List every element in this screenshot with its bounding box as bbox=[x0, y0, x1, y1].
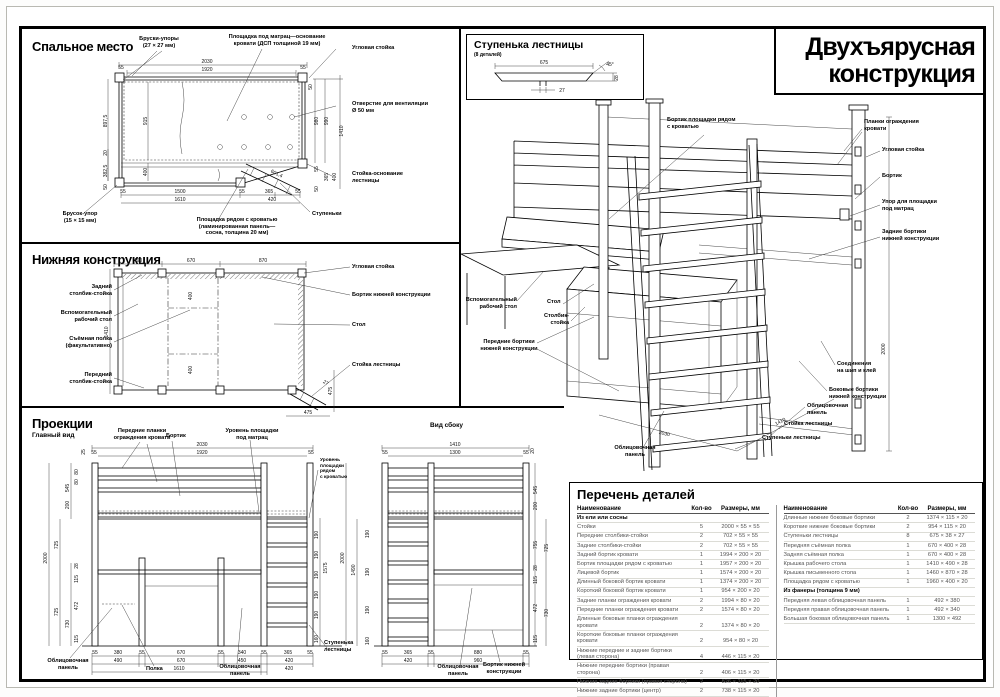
dim: 55 bbox=[120, 189, 126, 195]
cell-size: 1374 × 115 × 20 bbox=[919, 515, 975, 522]
table-row: Лицевой бортик 1 1574 × 200 × 20 bbox=[577, 569, 769, 578]
callout-planki-ograzhdeniya: Планки ограждения кровати bbox=[864, 119, 919, 132]
table-body: Длинные нижние боковые бортики 2 1374 × … bbox=[784, 514, 976, 624]
cell-size: 492 × 340 bbox=[919, 607, 975, 614]
table-row: Передняя правая облицовочная панель 1 49… bbox=[784, 606, 976, 615]
table-row: Крышка письменного стола 1 1460 × 870 × … bbox=[784, 569, 976, 578]
dim: 2000 bbox=[43, 552, 49, 563]
dim: 50 bbox=[314, 186, 320, 192]
col-header-name: Наименование bbox=[577, 506, 691, 513]
table-row: Передние столбики-стойки 2 702 × 55 × 55 bbox=[577, 533, 769, 542]
callout-bortik-ploshchadki: Бортик площадки рядом с кроватью bbox=[667, 117, 747, 130]
dim: 1920 bbox=[196, 450, 207, 456]
callout-zadnie-bortiki: Задние бортики нижней конструкции bbox=[882, 229, 939, 242]
parts-table-title: Перечень деталей bbox=[577, 487, 975, 502]
col-header-size: Размеры, мм bbox=[713, 506, 769, 513]
callout-bortik-nizhney: Бортик нижней конструкции bbox=[352, 292, 431, 299]
dim: 115 bbox=[533, 635, 539, 643]
dim: 545 bbox=[65, 484, 71, 493]
table-row: Задняя съёмная полка 1 670 × 400 × 28 bbox=[784, 551, 976, 560]
dim: 365 bbox=[404, 650, 413, 656]
col-header-qty: Кол-во bbox=[897, 506, 919, 513]
cell-size: 954 × 80 × 20 bbox=[713, 638, 769, 645]
table-row: Нижние задние бортики (правая сторона) 2… bbox=[577, 678, 769, 687]
dim: 55 bbox=[139, 650, 145, 656]
dim: 420 bbox=[285, 666, 294, 672]
dim: 190 bbox=[314, 591, 320, 600]
callout-bokovye-bortiki: Боковые бортики нижней конструкции bbox=[829, 387, 886, 400]
dim: 980 bbox=[314, 117, 320, 126]
isometric-drawing: 2030 1410 2000 bbox=[459, 99, 983, 481]
dim: 1410 bbox=[339, 125, 345, 136]
callout-stupenki: Ступеньки bbox=[312, 211, 342, 218]
dim: 472 bbox=[74, 602, 80, 611]
callout-stoyka-lestnitsy: Стойка лестницы bbox=[352, 362, 400, 369]
cell-qty: 1 bbox=[691, 579, 713, 586]
callout-stoyka-osnovanie: Стойка-основание лестницы bbox=[352, 171, 403, 184]
dim: 55 bbox=[428, 650, 434, 656]
cell-name: Нижние передние бортики (правая сторона) bbox=[577, 663, 691, 676]
dim: 55 bbox=[239, 189, 245, 195]
cell-name: Задняя съёмная полка bbox=[784, 552, 898, 559]
cell-qty: 2 bbox=[691, 623, 713, 630]
table-row: Длинные боковые планки ограждения кроват… bbox=[577, 615, 769, 631]
cell-qty: 1 bbox=[897, 561, 919, 568]
callout-stolbik-stoyka: Столбик- стойка bbox=[529, 313, 569, 326]
dim: 200 bbox=[533, 502, 539, 511]
cell-qty: 2 bbox=[691, 679, 713, 686]
callout-uglovaya-stoyka: Угловая стойка bbox=[352, 264, 394, 271]
cell-name: Передняя съёмная полка bbox=[784, 543, 898, 550]
dim: 725 bbox=[54, 608, 60, 617]
cell-qty: 2 bbox=[691, 533, 713, 540]
cell-size: 1460 × 870 × 28 bbox=[919, 570, 975, 577]
cell-name: Крышка письменного стола bbox=[784, 570, 898, 577]
callout-oblitsovochnaya-l: Облицовочная панель bbox=[607, 445, 663, 458]
page-title-line2: конструкция bbox=[776, 61, 975, 88]
dim: 28 bbox=[74, 563, 80, 569]
col-header-qty: Кол-во bbox=[691, 506, 713, 513]
dim: 380 bbox=[114, 650, 123, 656]
table-row: Задний бортик кровати 1 1994 × 200 × 20 bbox=[577, 551, 769, 560]
dim: 365 bbox=[324, 173, 330, 182]
callout-bortik: Бортик bbox=[882, 173, 902, 180]
table-row: Короткие нижние боковые бортики 2 954 × … bbox=[784, 523, 976, 532]
table-row: Большая боковая облицовочная панель 1 13… bbox=[784, 615, 976, 624]
cell-name: Длинный боковой бортик кровати bbox=[577, 579, 691, 586]
callout-otverstie: Отверстие для вентиляции Ø 50 мм bbox=[352, 101, 428, 114]
dim: 2030 bbox=[196, 442, 207, 448]
table-row: Передняя съёмная полка 1 670 × 400 × 28 bbox=[784, 542, 976, 551]
step-detail-title: Ступенька лестницы bbox=[474, 39, 583, 51]
dim: 490 bbox=[134, 258, 143, 264]
cell-name: Ступеньки лестницы bbox=[784, 533, 898, 540]
callout-zadniy-stolbik: Задний столбик-стойка bbox=[52, 284, 112, 297]
callout-vspom-stol: Вспомогательный рабочий стол bbox=[52, 310, 112, 323]
callout-peredniy-stolbik: Передний столбик-стойка bbox=[52, 372, 112, 385]
callout-stupenka-lestnitsy: Ступенька лестницы bbox=[324, 640, 353, 653]
cell-name: Нижние задние бортики (правая сторона) bbox=[577, 679, 691, 686]
cell-qty: 1 bbox=[897, 616, 919, 623]
page-margin: Спальное место 2030 1 bbox=[6, 6, 994, 688]
callout-uroven-ryadom: Уровень площадки рядом с кроватью bbox=[320, 458, 360, 481]
dim: 1920 bbox=[201, 67, 212, 73]
cell-size: 1374 × 200 × 20 bbox=[713, 579, 769, 586]
cell-name: Из ели или сосны bbox=[577, 515, 691, 522]
cell-name: Бортик площадки рядом с кроватью bbox=[577, 561, 691, 568]
cell-qty: 2 bbox=[897, 524, 919, 531]
cell-size: 826 × 115 × 20 bbox=[713, 679, 769, 686]
dim: 190 bbox=[314, 571, 320, 580]
callout-bortik-nizhney: Бортик нижней конструкции bbox=[474, 662, 534, 675]
cell-name: Крышка рабочего стола bbox=[784, 561, 898, 568]
dim: 160 bbox=[314, 635, 320, 644]
dim: 55 bbox=[307, 650, 313, 656]
callout-stoyka-lestnitsy: Стойка лестницы bbox=[784, 421, 832, 428]
dim: 400 bbox=[188, 366, 194, 375]
dim: 80 bbox=[74, 479, 80, 485]
table-row: Ступеньки лестницы 8 675 × 38 × 27 bbox=[784, 533, 976, 542]
cell-qty: 1 bbox=[691, 570, 713, 577]
cell-name: Передняя правая облицовочная панель bbox=[784, 607, 898, 614]
cell-name: Короткий боковой бортик кровати bbox=[577, 588, 691, 595]
dim: 115 bbox=[74, 575, 80, 583]
cell-qty: 2 bbox=[691, 638, 713, 645]
cell-name: Задние столбики-стойки bbox=[577, 543, 691, 550]
cell-size: 446 × 115 × 20 bbox=[713, 654, 769, 661]
title-block: Двухъярусная конструкция bbox=[774, 29, 983, 95]
dim: 45° bbox=[606, 62, 614, 68]
section-lower-construction: Нижняя конструкция 490 670 870 1410 400 … bbox=[22, 244, 459, 406]
cell-size: 675 × 38 × 27 bbox=[919, 533, 975, 540]
parts-table-right-group: Наименование Кол-во Размеры, мм Длинные … bbox=[776, 505, 976, 697]
dim: 55 bbox=[300, 65, 306, 71]
callout-upor-ploshchadki: Упор для площадки под матрац bbox=[882, 199, 937, 212]
dim: 190 bbox=[365, 530, 371, 539]
callout-oblits-panel-2: Облицовочная панель bbox=[212, 664, 268, 677]
table-row: Длинный боковой бортик кровати 1 1374 × … bbox=[577, 579, 769, 588]
dim: 365 bbox=[284, 650, 293, 656]
cell-qty: 1 bbox=[897, 552, 919, 559]
dim: 55 bbox=[118, 65, 124, 71]
dim: 870 bbox=[259, 258, 268, 264]
step-detail-subtitle: (8 деталей) bbox=[474, 52, 502, 58]
cell-name: Из фанеры (толщина 9 мм) bbox=[784, 588, 898, 595]
cell-name: Короткие боковые планки ограждения крова… bbox=[577, 632, 691, 645]
cell-name: Задние планки ограждения кровати bbox=[577, 598, 691, 605]
dim: 55 bbox=[295, 189, 301, 195]
table-body: Из ели или сосны Стойки 5 2000 × 55 × 55… bbox=[577, 514, 769, 697]
table-header-row: Наименование Кол-во Размеры, мм bbox=[577, 505, 769, 514]
cell-name: Передняя левая облицовочная панель bbox=[784, 598, 898, 605]
cell-qty: 1 bbox=[897, 579, 919, 586]
dim: 365 bbox=[265, 189, 274, 195]
dim: 55 bbox=[308, 450, 314, 456]
cell-size: 702 × 55 × 55 bbox=[713, 543, 769, 550]
dim: 420 bbox=[285, 658, 294, 664]
cell-name: Нижние передние и задние бортики (левая … bbox=[577, 648, 691, 661]
dim: 670 bbox=[177, 650, 186, 656]
dim: 475 bbox=[328, 387, 334, 396]
dim: 55 bbox=[261, 650, 267, 656]
callout-stol: Стол bbox=[547, 299, 561, 306]
dim: 50 bbox=[308, 84, 314, 90]
cell-qty: 2 bbox=[691, 670, 713, 677]
cell-qty: 4 bbox=[691, 654, 713, 661]
step-detail-box: Ступенька лестницы (8 деталей) 675 27 45… bbox=[466, 34, 644, 100]
dim: 55 bbox=[382, 450, 388, 456]
parts-table: Перечень деталей Наименование Кол-во Раз… bbox=[569, 482, 983, 660]
cell-size: 492 × 380 bbox=[919, 598, 975, 605]
dim: 400 bbox=[188, 292, 194, 301]
cell-size: 1960 × 400 × 20 bbox=[919, 579, 975, 586]
cell-qty: 1 bbox=[897, 570, 919, 577]
dim: 725 bbox=[54, 541, 60, 550]
dim: 2000 bbox=[881, 343, 887, 354]
cell-qty: 1 bbox=[897, 543, 919, 550]
dim: 490 bbox=[114, 658, 123, 664]
cell-name: Площадка рядом с кроватью bbox=[784, 579, 898, 586]
cell-name: Длинные боковые планки ограждения кроват… bbox=[577, 616, 691, 629]
cell-name: Задний бортик кровати bbox=[577, 552, 691, 559]
cell-qty: 1 bbox=[691, 561, 713, 568]
cell-size: 1410 × 490 × 28 bbox=[919, 561, 975, 568]
dim: 55 bbox=[91, 450, 97, 456]
cell-size: 1300 × 492 bbox=[919, 616, 975, 623]
callout-ploshchadka-ryadom: Площадка рядом с кроватью (ламинированна… bbox=[172, 217, 302, 237]
table-row: Задние столбики-стойки 2 702 × 55 × 55 bbox=[577, 542, 769, 551]
table-header-row: Наименование Кол-во Размеры, мм bbox=[784, 505, 976, 514]
table-row: Из фанеры (толщина 9 мм) bbox=[784, 588, 976, 597]
table-row: Длинные нижние боковые бортики 2 1374 × … bbox=[784, 514, 976, 523]
cell-size: 1574 × 80 × 20 bbox=[713, 607, 769, 614]
dim: 55 bbox=[92, 650, 98, 656]
table-row: Крышка рабочего стола 1 1410 × 490 × 28 bbox=[784, 560, 976, 569]
callout-bruski-upory: Бруски-упоры (27 × 27 мм) bbox=[130, 36, 188, 49]
dim: 1575 bbox=[323, 562, 329, 573]
dim: 55 bbox=[218, 650, 224, 656]
dim: 160 bbox=[365, 637, 371, 646]
table-row: Нижние задние бортики (центр) 2 738 × 11… bbox=[577, 688, 769, 697]
cell-qty: 1 bbox=[691, 552, 713, 559]
cell-name: Длинные нижние боковые бортики bbox=[784, 515, 898, 522]
callout-oblitsovochnaya-r: Облицовочная панель bbox=[807, 403, 848, 416]
cell-qty: 2 bbox=[691, 607, 713, 614]
cell-name: Стойки bbox=[577, 524, 691, 531]
dim: 190 bbox=[314, 611, 320, 620]
dim: 2000 bbox=[340, 552, 346, 563]
cell-size: 1374 × 80 × 20 bbox=[713, 623, 769, 630]
table-row: Короткие боковые планки ограждения крова… bbox=[577, 631, 769, 647]
table-row: Короткий боковой бортик кровати 1 954 × … bbox=[577, 588, 769, 597]
callout-perednie-planki: Передние планки ограждения кровати bbox=[110, 428, 174, 441]
dim: 1610 bbox=[173, 666, 184, 672]
cell-size: 670 × 400 × 28 bbox=[919, 552, 975, 559]
callout-soedineniya: Соединения на шип и клей bbox=[837, 361, 876, 374]
cell-qty: 1 bbox=[897, 598, 919, 605]
dim: 730 bbox=[544, 609, 550, 618]
cell-size: 954 × 200 × 20 bbox=[713, 588, 769, 595]
table-row: Передняя левая облицовочная панель 1 492… bbox=[784, 597, 976, 606]
cell-qty: 5 bbox=[691, 524, 713, 531]
dim: 400 bbox=[332, 173, 338, 182]
cell-size: 954 × 115 × 20 bbox=[919, 524, 975, 531]
table-row: Передние планки ограждения кровати 2 157… bbox=[577, 606, 769, 615]
dim: 1490 bbox=[351, 564, 357, 575]
callout-perednie-bortiki: Передние бортики нижней конструкции bbox=[477, 339, 541, 352]
dim: 25 bbox=[81, 449, 87, 455]
cell-qty: 1 bbox=[897, 607, 919, 614]
step-detail-drawing: 675 27 45° 28 bbox=[467, 59, 643, 99]
dim: 190 bbox=[314, 531, 320, 540]
dim: 28 bbox=[614, 75, 620, 81]
page-title-line1: Двухъярусная bbox=[776, 34, 975, 61]
callout-stupenki-lestnitsy: Ступеньки лестницы bbox=[762, 435, 821, 442]
col-header-name: Наименование bbox=[784, 506, 898, 513]
cell-size: 1957 × 200 × 20 bbox=[713, 561, 769, 568]
table-row: Стойки 5 2000 × 55 × 55 bbox=[577, 523, 769, 532]
cell-qty: 2 bbox=[897, 515, 919, 522]
dim: 1500 bbox=[174, 189, 185, 195]
dim: 55 bbox=[523, 650, 529, 656]
table-row: Площадка рядом с кроватью 1 1960 × 400 ×… bbox=[784, 579, 976, 588]
dim: 200 bbox=[65, 501, 71, 510]
dim: 55 bbox=[382, 650, 388, 656]
dim: 670 bbox=[177, 658, 186, 664]
dim: 730 bbox=[65, 620, 71, 629]
callout-polka: Полка bbox=[146, 666, 163, 673]
dim: 420 bbox=[404, 658, 413, 664]
dim: 400 bbox=[143, 168, 149, 177]
table-row: Нижние передние и задние бортики (левая … bbox=[577, 647, 769, 663]
dim: 670 bbox=[187, 258, 196, 264]
dim: 28 bbox=[533, 565, 539, 571]
dim: 880 bbox=[474, 650, 483, 656]
callout-ploshchadka-matrats: Площадка под матрац—основание кровати (Д… bbox=[212, 34, 342, 47]
dim: 897,5 bbox=[103, 115, 109, 128]
dim: 2030 bbox=[201, 59, 212, 65]
dim: 382,5 bbox=[103, 165, 109, 178]
drawing-sheet: Спальное место 2030 1 bbox=[19, 26, 986, 682]
dim: 190 bbox=[365, 568, 371, 577]
cell-name: Лицевой бортик bbox=[577, 570, 691, 577]
dim: 545 bbox=[533, 486, 539, 495]
dim: 755 bbox=[533, 541, 539, 550]
cell-qty: 1 bbox=[691, 588, 713, 595]
table-row: Бортик площадки рядом с кроватью 1 1957 … bbox=[577, 560, 769, 569]
dim: 115 bbox=[74, 635, 80, 643]
callout-brusok-upor: Брусок-упор (15 × 15 мм) bbox=[52, 211, 108, 224]
dim: 472 bbox=[533, 604, 539, 613]
callout-uglovaya-stoyka: Угловая стойка bbox=[882, 147, 924, 154]
dim: 190 bbox=[365, 606, 371, 615]
dim: 420 bbox=[268, 197, 277, 203]
dim: 115 bbox=[533, 576, 539, 584]
cell-name: Короткие нижние боковые бортики bbox=[784, 524, 898, 531]
parts-table-left-group: Наименование Кол-во Размеры, мм Из ели и… bbox=[577, 505, 769, 697]
callout-uglovaya-stoyka: Угловая стойка bbox=[352, 45, 394, 52]
cell-qty: 8 bbox=[897, 533, 919, 540]
callout-oblits-panel-1: Облицовочная панель bbox=[40, 658, 96, 671]
dim: 190 bbox=[314, 551, 320, 560]
isometric-view: 2030 1410 2000 Бортик площадки рядом с к… bbox=[459, 99, 983, 481]
callout-stol: Стол bbox=[352, 322, 366, 329]
dim: 50 bbox=[103, 184, 109, 190]
section-sleeping-place: Спальное место 2030 1 bbox=[22, 29, 459, 242]
cell-size: 2000 × 55 × 55 bbox=[713, 524, 769, 531]
callout-bortik: Бортик bbox=[166, 433, 186, 440]
cell-name: Передние планки ограждения кровати bbox=[577, 607, 691, 614]
dim: 601,4 bbox=[269, 169, 283, 180]
cell-qty: 2 bbox=[691, 543, 713, 550]
dim: 27 bbox=[322, 379, 330, 387]
cell-size: 670 × 400 × 28 bbox=[919, 543, 975, 550]
dim: 915 bbox=[143, 117, 149, 126]
dim: 20 bbox=[103, 150, 109, 156]
cell-qty: 2 bbox=[691, 598, 713, 605]
dim: 725 bbox=[544, 544, 550, 553]
cell-size: 406 × 115 × 20 bbox=[713, 670, 769, 677]
dim: 1610 bbox=[174, 197, 185, 203]
cell-size: 1574 × 200 × 20 bbox=[713, 570, 769, 577]
dim: 80 bbox=[74, 469, 80, 475]
callout-syomnaya-polka: Съёмная полка (факультативно) bbox=[52, 336, 112, 349]
cell-name: Большая боковая облицовочная панель bbox=[784, 616, 898, 623]
cell-name: Передние столбики-стойки bbox=[577, 533, 691, 540]
dim: 340 bbox=[238, 650, 247, 656]
cell-size: 1994 × 200 × 20 bbox=[713, 552, 769, 559]
dim: 27 bbox=[559, 88, 565, 94]
table-row: Задние планки ограждения кровати 2 1994 … bbox=[577, 597, 769, 606]
col-header-size: Размеры, мм bbox=[919, 506, 975, 513]
callout-uroven-matrats: Уровень площадки под матрац bbox=[220, 428, 284, 441]
table-row: Нижние передние бортики (правая сторона)… bbox=[577, 663, 769, 679]
dim: 990 bbox=[324, 117, 330, 126]
cell-size: 1994 × 80 × 20 bbox=[713, 598, 769, 605]
callout-vspom-stol: Вспомогательный рабочий стол bbox=[463, 297, 517, 310]
dim: 675 bbox=[540, 60, 549, 66]
cell-size: 702 × 55 × 55 bbox=[713, 533, 769, 540]
table-row: Из ели или сосны bbox=[577, 514, 769, 523]
